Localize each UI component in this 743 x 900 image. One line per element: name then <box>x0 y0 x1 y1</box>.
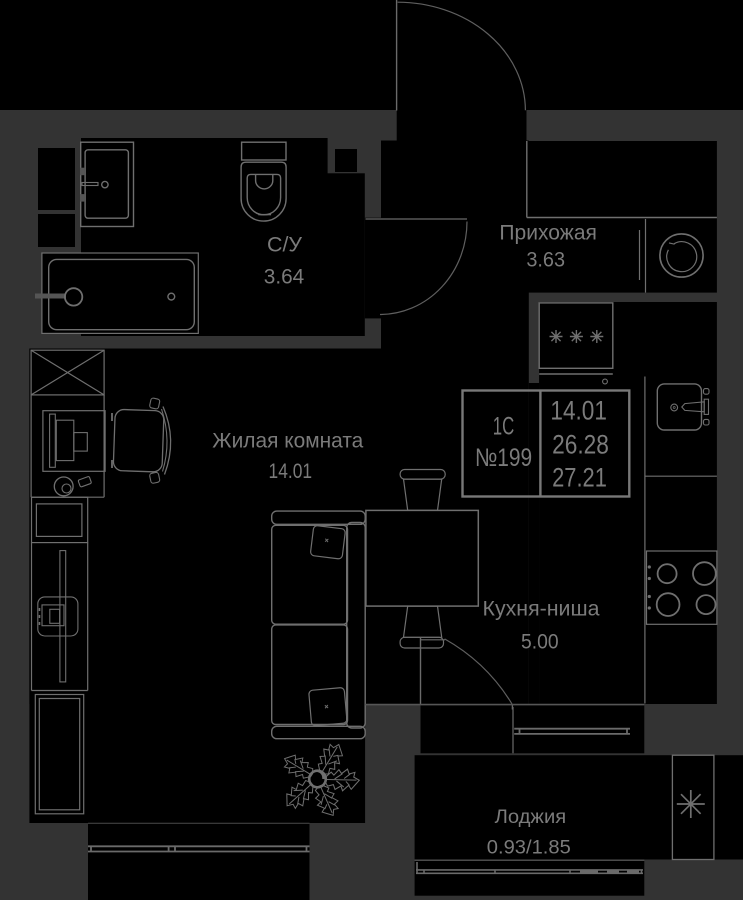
svg-text:1С: 1С <box>493 412 515 440</box>
svg-text:3.63: 3.63 <box>526 249 565 272</box>
svg-text:№199: №199 <box>475 444 532 472</box>
svg-text:Лоджия: Лоджия <box>495 807 567 828</box>
svg-text:5.00: 5.00 <box>521 630 559 653</box>
svg-text:27.21: 27.21 <box>552 463 607 493</box>
svg-text:Прихожая: Прихожая <box>499 222 597 245</box>
svg-text:Кухня-ниша: Кухня-ниша <box>483 598 600 621</box>
svg-text:Жилая комната: Жилая комната <box>212 430 363 453</box>
svg-text:3.64: 3.64 <box>264 265 305 288</box>
svg-text:0.93/1.85: 0.93/1.85 <box>487 838 571 859</box>
svg-text:14.01: 14.01 <box>550 395 607 425</box>
svg-text:С/У: С/У <box>267 234 303 257</box>
svg-text:14.01: 14.01 <box>269 460 313 483</box>
svg-text:26.28: 26.28 <box>552 429 609 459</box>
